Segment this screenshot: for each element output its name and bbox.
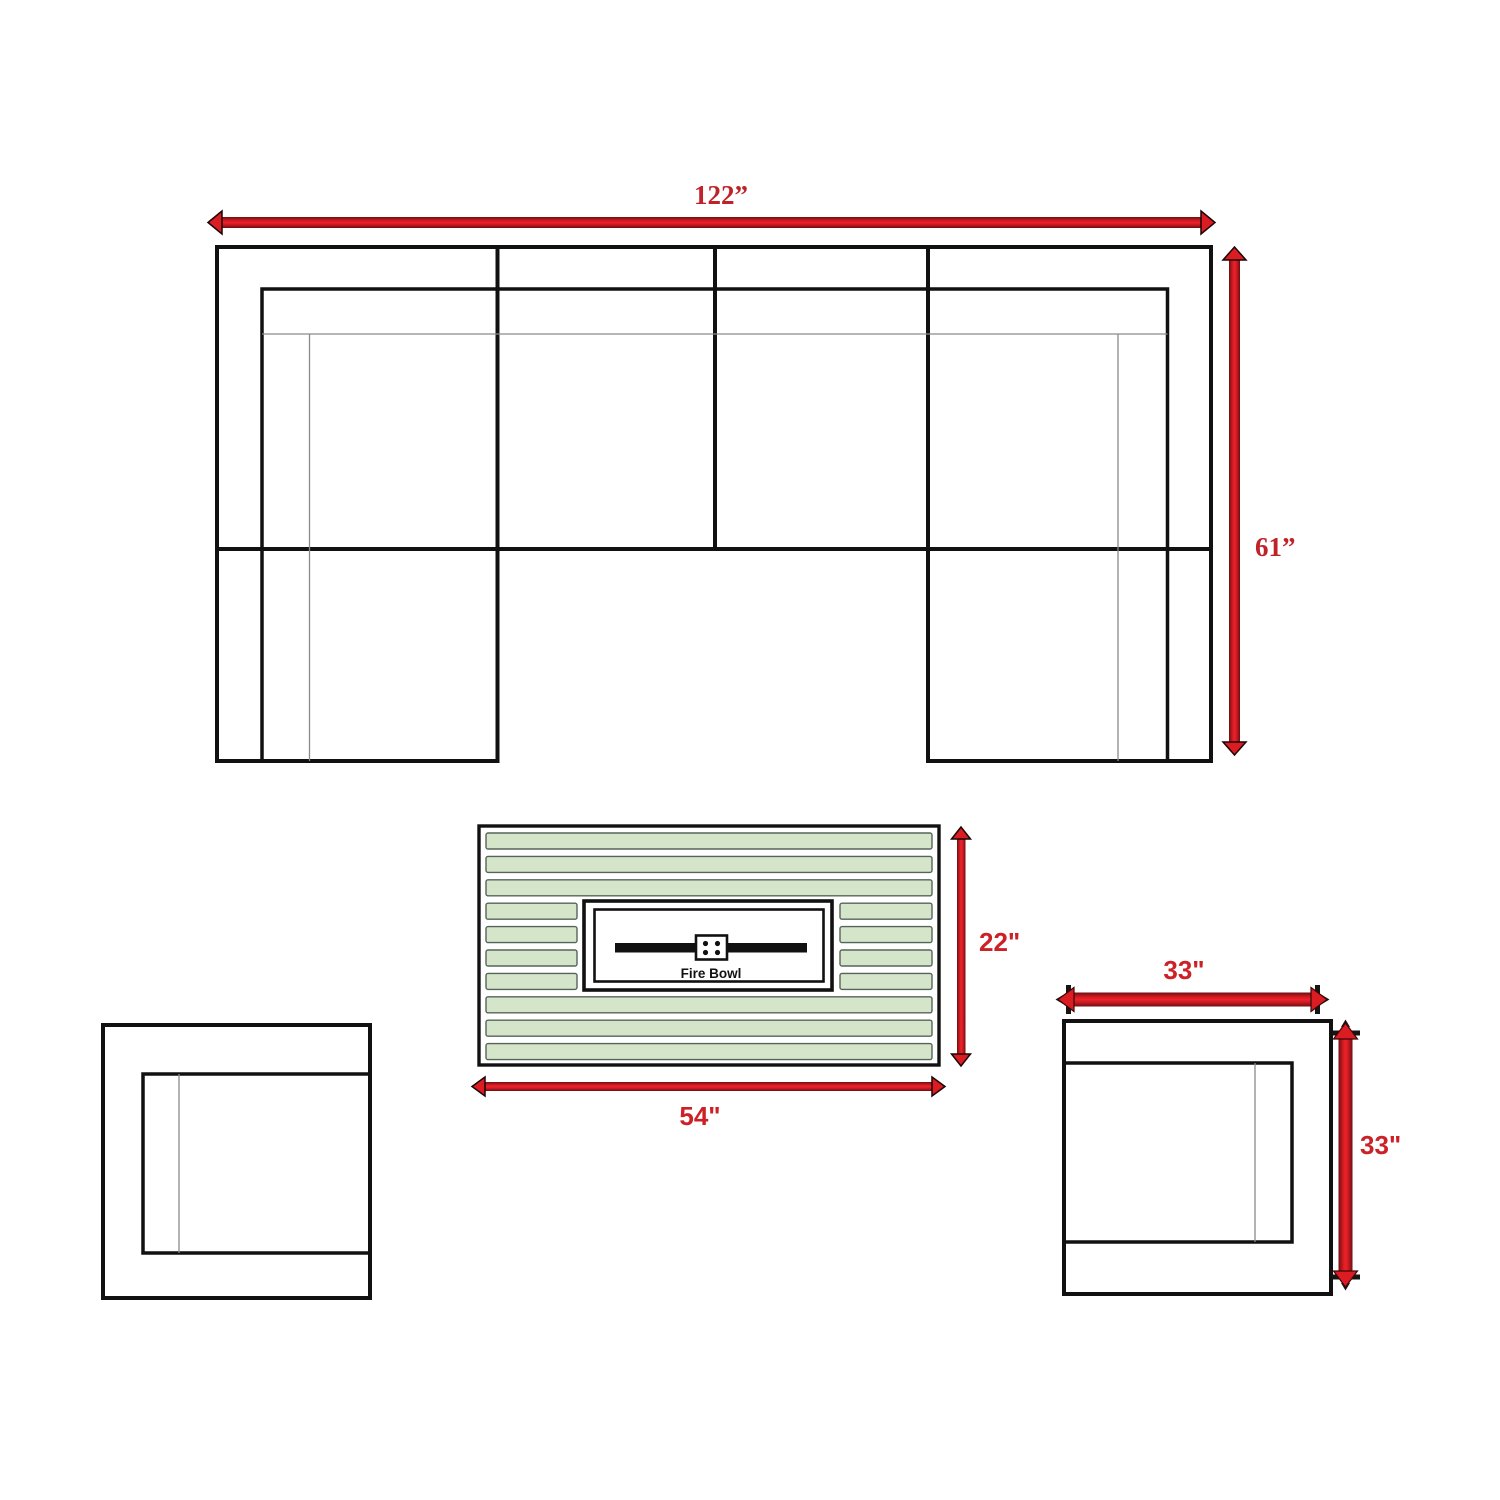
- svg-text:122”: 122”: [694, 180, 748, 210]
- svg-text:54": 54": [679, 1101, 720, 1131]
- svg-text:61”: 61”: [1255, 532, 1296, 562]
- svg-text:Fire Bowl: Fire Bowl: [681, 966, 742, 981]
- svg-text:22": 22": [979, 927, 1020, 957]
- svg-text:33": 33": [1360, 1130, 1401, 1160]
- svg-text:33": 33": [1163, 955, 1204, 985]
